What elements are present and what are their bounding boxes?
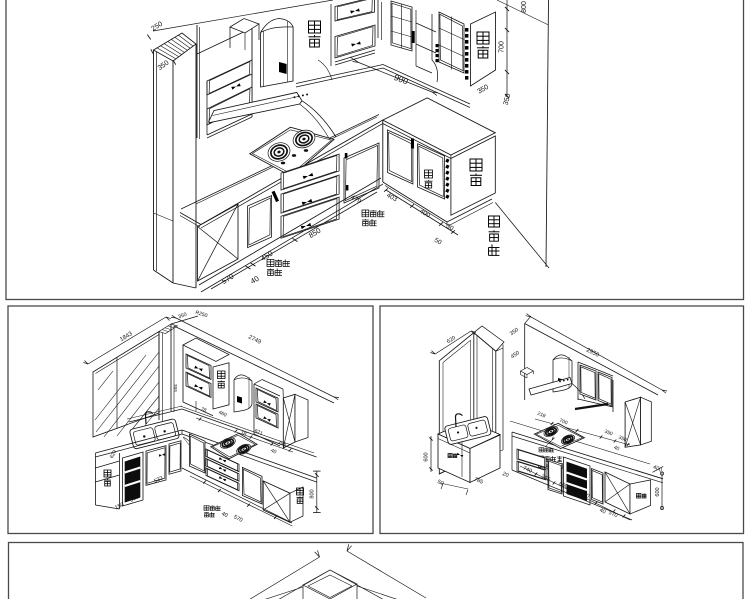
svg-text:700: 700 (499, 41, 506, 53)
svg-text:600: 600 (424, 452, 430, 461)
svg-text:800: 800 (310, 489, 316, 498)
svg-text:600: 600 (655, 487, 661, 496)
svg-text:504: 504 (173, 384, 178, 392)
svg-text:800: 800 (521, 1, 528, 13)
